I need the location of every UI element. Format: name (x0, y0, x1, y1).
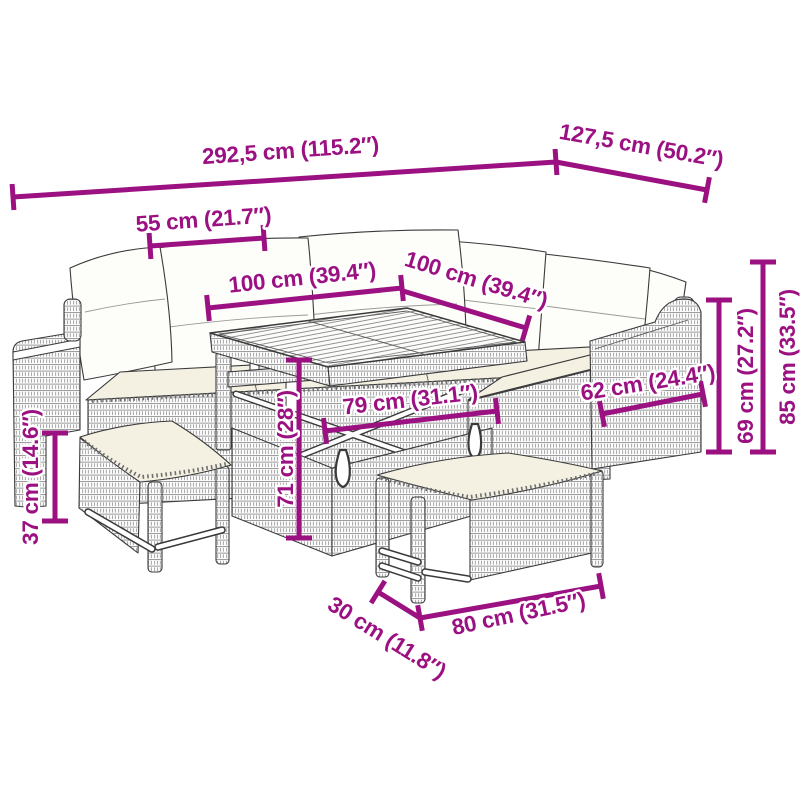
dim-overall-height-label: 85 cm (33.5″) (775, 289, 800, 425)
right-bench-leg (591, 470, 603, 567)
dim-seat-width-label: 55 cm (21.7″) (135, 202, 272, 236)
dim-back-height-label: 69 cm (27.2″) (733, 308, 758, 444)
zipper-pull-left (336, 450, 350, 487)
product-dimension-diagram: 292,5 cm (115.2″) 127,5 cm (50.2″) 55 cm… (0, 0, 800, 800)
back-cushion-1 (70, 247, 172, 380)
dim-overall-depth-line (556, 162, 709, 203)
dim-overall-depth-label: 127,5 cm (50.2″) (557, 119, 725, 172)
zipper-pull-right (468, 424, 481, 458)
dim-table-height-label: 71 cm (28″) (273, 390, 298, 508)
dim-overall-width-label: 292,5 cm (115.2″) (201, 132, 379, 169)
left-bench-leg (216, 466, 229, 564)
dim-bench-length-label: 80 cm (31.5″) (449, 587, 587, 640)
left-arm-post (64, 299, 81, 341)
right-bench-leg (411, 497, 425, 603)
diagram-canvas: 292,5 cm (115.2″) 127,5 cm (50.2″) 55 cm… (0, 0, 800, 800)
table-leg (216, 352, 231, 450)
dim-bench-height-label: 37 cm (14.6″) (18, 409, 43, 545)
dim-bench-depth-label: 30 cm (11.8″) (323, 591, 450, 683)
right-bench-leg (376, 478, 389, 577)
left-bench-leg (148, 482, 162, 572)
